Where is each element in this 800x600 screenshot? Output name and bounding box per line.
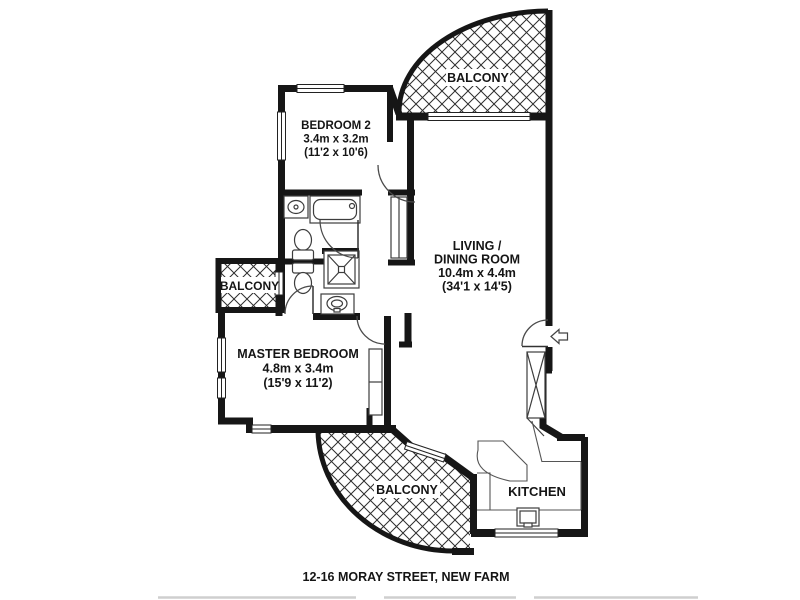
window-kitchen-bottom bbox=[495, 529, 558, 537]
entry-arrow-icon bbox=[551, 330, 568, 344]
balcony-left-label: BALCONY bbox=[220, 279, 279, 293]
floorplan-page: BALCONY BEDROOM 2 3.4m x 3.2m (11'2 x 10… bbox=[0, 0, 800, 600]
svg-text:(34'1 x 14'5): (34'1 x 14'5) bbox=[442, 280, 512, 294]
wardrobe bbox=[369, 349, 382, 415]
door-master-bedroom bbox=[357, 316, 385, 344]
window-master-left-2 bbox=[218, 378, 226, 398]
balcony-top-label: BALCONY bbox=[447, 71, 509, 85]
svg-text:DINING ROOM: DINING ROOM bbox=[434, 253, 520, 267]
vanity-basin-2 bbox=[321, 294, 354, 314]
svg-text:(11'2 x 10'6): (11'2 x 10'6) bbox=[304, 147, 368, 159]
svg-text:10.4m x 4.4m: 10.4m x 4.4m bbox=[438, 266, 516, 280]
bedroom2-label-block: BEDROOM 2 3.4m x 3.2m (11'2 x 10'6) bbox=[301, 120, 371, 159]
kitchen-label: KITCHEN bbox=[508, 484, 566, 499]
svg-text:4.8m x 3.4m: 4.8m x 3.4m bbox=[263, 362, 334, 376]
toilet-2 bbox=[293, 263, 314, 294]
toilet-1 bbox=[293, 230, 314, 261]
svg-text:(15'9 x 11'2): (15'9 x 11'2) bbox=[263, 376, 332, 390]
window-living-top bbox=[428, 113, 530, 121]
svg-text:BEDROOM 2: BEDROOM 2 bbox=[301, 120, 371, 132]
svg-text:3.4m x 3.2m: 3.4m x 3.2m bbox=[303, 134, 368, 146]
window-master-bottom bbox=[252, 425, 271, 433]
balcony-top-area bbox=[400, 13, 547, 115]
window-master-left-1 bbox=[218, 338, 226, 372]
address-caption: 12-16 MORAY STREET, NEW FARM bbox=[303, 570, 510, 584]
floorplan-svg: BALCONY BEDROOM 2 3.4m x 3.2m (11'2 x 10… bbox=[0, 0, 800, 600]
svg-text:MASTER BEDROOM: MASTER BEDROOM bbox=[237, 347, 359, 361]
svg-text:LIVING /: LIVING / bbox=[453, 239, 502, 253]
hall-closet bbox=[391, 197, 407, 258]
shower bbox=[324, 251, 359, 288]
living-dining-label-block: LIVING / DINING ROOM 10.4m x 4.4m (34'1 … bbox=[434, 239, 520, 294]
vanity-basin-1 bbox=[284, 196, 308, 218]
door-entry bbox=[522, 320, 548, 347]
window-bedroom2-top bbox=[297, 85, 344, 93]
bathtub bbox=[310, 196, 360, 223]
window-bedroom2-left bbox=[278, 112, 286, 160]
master-bedroom-label-block: MASTER BEDROOM 4.8m x 3.4m (15'9 x 11'2) bbox=[237, 347, 359, 390]
kitchen-sink bbox=[517, 508, 539, 527]
balcony-bottom-label: BALCONY bbox=[376, 483, 438, 497]
